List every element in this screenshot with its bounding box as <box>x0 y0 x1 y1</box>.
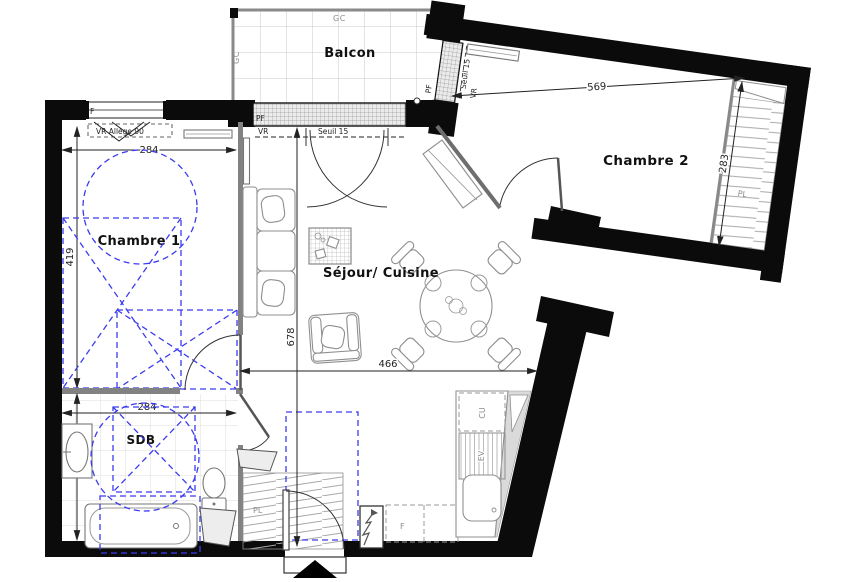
window-pf-sejour <box>253 103 406 126</box>
chambre2-wing: PF Seuil 15 VR PL <box>396 0 812 283</box>
electrical-panel <box>360 506 383 548</box>
floor-plan: GC GC Balcon PF Seuil 15 VR <box>0 0 851 582</box>
entry-door-leaf <box>283 490 289 550</box>
allege-label: VR Allège 90 <box>96 127 144 136</box>
vr-label-sejour: VR <box>258 127 268 136</box>
sofa-cushion <box>260 195 285 224</box>
partition-ch1-sejour <box>238 122 243 335</box>
room-label-balcon: Balcon <box>324 46 375 61</box>
pf-label-sejour: PF <box>256 114 265 123</box>
pf-label-chambre2: PF <box>424 84 434 94</box>
vr-label-chambre2: VR <box>468 87 478 98</box>
fridge-slot: F <box>386 505 458 542</box>
vanity-sink <box>62 424 92 478</box>
bathtub <box>85 504 197 548</box>
door-arc-sdb <box>244 437 269 451</box>
toilet <box>202 468 226 511</box>
rug <box>309 228 351 264</box>
room-label-sejour: Séjour/ Cuisine <box>323 266 439 281</box>
door-leaf-sdb <box>240 394 269 437</box>
window-f-label: F <box>90 107 94 116</box>
door-arc-chambre1 <box>185 335 240 390</box>
sofa <box>243 187 295 317</box>
partition-ch1-sdb <box>62 388 180 394</box>
rug-item <box>315 249 326 259</box>
sofa-cushion <box>260 279 285 307</box>
door-leaf-chambre2 <box>558 158 562 211</box>
room-label-chambre2: Chambre 2 <box>603 153 689 169</box>
sink-label: EV <box>477 450 486 461</box>
seuil-label-sejour: Seuil 15 <box>318 127 348 136</box>
dim-ch2-width: 569 <box>587 81 607 93</box>
chambre1: F VR Allège 90 284 419 Chambre 1 <box>62 101 237 389</box>
pl-label-chambre2: PL <box>737 189 748 199</box>
guardrail-label-left: GC <box>232 51 241 64</box>
floor-plan-page: GC GC Balcon PF Seuil 15 VR <box>0 0 851 582</box>
accessibility-overlay-chambre1 <box>63 150 237 389</box>
closet-door-leaf <box>237 449 277 471</box>
closet-door-leaf <box>200 508 236 546</box>
fridge-label: F <box>400 522 405 531</box>
pl-label-entry: PL <box>253 506 263 515</box>
dim-ch1-depth: 419 <box>65 247 76 266</box>
chambre2-entry <box>423 126 562 211</box>
wall-top-a <box>45 100 86 120</box>
cooktop-label: CU <box>478 407 487 419</box>
armchair <box>308 312 361 363</box>
door-arc-chambre2 <box>500 158 558 205</box>
wall-left <box>45 100 62 557</box>
room-label-sdb: SDB <box>127 433 156 447</box>
radiator-sejour <box>244 138 250 184</box>
dim-sejour-width: 466 <box>378 359 397 370</box>
kitchen-sink-bowl <box>463 475 501 521</box>
wall-ch2-corner <box>426 0 465 42</box>
guardrail-label-top: GC <box>333 14 346 23</box>
dim-sejour-depth: 678 <box>286 327 297 346</box>
window-f-chambre1: F <box>84 101 168 119</box>
radiator-chambre1 <box>184 130 232 138</box>
balcony-post <box>230 8 238 18</box>
door-stop <box>414 98 420 104</box>
